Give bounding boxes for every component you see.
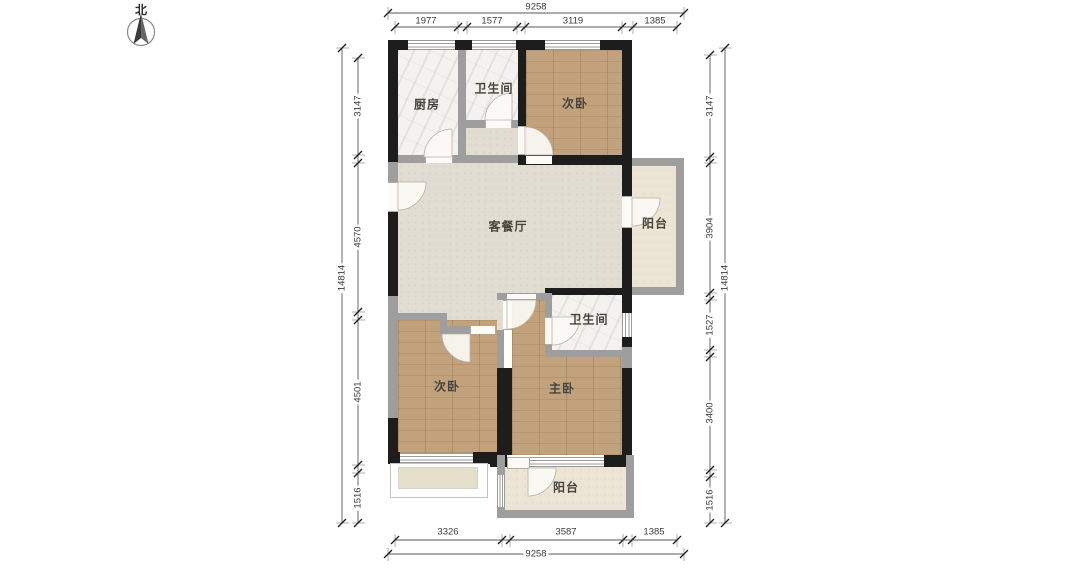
kitchen-door xyxy=(425,155,453,163)
wall xyxy=(676,158,684,295)
dim-left-seg-1: 4570 xyxy=(353,224,364,249)
balcony-bottom-slide-window xyxy=(528,457,604,467)
bay-window-inner xyxy=(398,467,478,489)
dim-right-seg-3: 3400 xyxy=(705,400,716,425)
dim-top-total: 9258 xyxy=(525,2,546,13)
dim-bottom-total: 9258 xyxy=(523,549,548,560)
room-label-bedroom-lower: 次卧 xyxy=(434,378,460,395)
master-door-gap xyxy=(507,294,536,299)
dim-right-seg-2: 1527 xyxy=(705,312,716,337)
wall xyxy=(545,288,632,295)
bath-top-door xyxy=(485,120,512,128)
wall xyxy=(622,40,632,196)
wall xyxy=(388,296,398,418)
bedroom-top-door-gap xyxy=(526,156,552,164)
room-label-balcony-right: 阳台 xyxy=(642,215,668,232)
room-label-living: 客餐厅 xyxy=(488,218,527,235)
wall xyxy=(518,40,526,126)
wall xyxy=(545,350,632,357)
wall xyxy=(626,455,634,518)
dim-bottom-seg-1: 3587 xyxy=(555,527,576,538)
dim-top-seg-3: 1385 xyxy=(644,16,665,27)
bath-lower-door xyxy=(545,317,552,345)
dim-top-seg-1: 1577 xyxy=(481,16,502,27)
bedroom-top-door-panel xyxy=(518,126,526,155)
dim-right-seg-4: 1516 xyxy=(705,487,716,512)
bedroom-lower-door xyxy=(470,326,496,334)
room-label-balcony-bottom: 阳台 xyxy=(553,479,579,496)
bath-top-window xyxy=(472,40,516,50)
wall xyxy=(545,295,552,317)
wall xyxy=(388,40,398,162)
kitchen-window xyxy=(408,40,455,50)
balcony-bottom-door xyxy=(507,457,530,469)
bedroom-lower-window xyxy=(400,453,473,463)
dim-top-seg-0: 1977 xyxy=(415,16,436,27)
room-label-bath-top: 卫生间 xyxy=(474,80,513,97)
wall xyxy=(497,510,634,518)
dim-left-total: 14814 xyxy=(337,263,348,293)
dim-top-seg-2: 3119 xyxy=(563,16,583,27)
dim-bottom-seg-2: 1385 xyxy=(643,527,664,538)
wall xyxy=(388,162,398,182)
bedroom-top-window xyxy=(545,40,600,50)
balcony-right-door xyxy=(622,196,632,228)
dim-left-seg-0: 3147 xyxy=(353,93,364,118)
wall xyxy=(622,368,632,462)
wall xyxy=(497,330,504,368)
entry-door xyxy=(388,182,398,212)
dim-bottom-seg-0: 3326 xyxy=(437,527,458,538)
wall xyxy=(398,155,425,163)
room-label-bath-lower: 卫生间 xyxy=(569,311,608,328)
north-label: 北 xyxy=(135,1,147,18)
bath-lower-window xyxy=(622,313,632,337)
wall xyxy=(453,155,518,163)
wall xyxy=(497,368,512,455)
room-label-bedroom-top: 次卧 xyxy=(562,95,588,112)
dim-right-seg-0: 3147 xyxy=(705,93,716,118)
master-door-panel xyxy=(503,300,512,330)
balcony-bottom-side-window xyxy=(497,475,505,507)
wall xyxy=(458,50,466,155)
dim-left-seg-3: 1516 xyxy=(353,485,364,510)
room-label-kitchen: 厨房 xyxy=(414,96,440,113)
wall xyxy=(632,287,684,295)
dim-left-seg-2: 4501 xyxy=(353,379,364,404)
room-label-master: 主卧 xyxy=(549,380,575,397)
floor-plan: 厨房 卫生间 次卧 客餐厅 阳台 卫生间 次卧 主卧 阳台 9258 1977 … xyxy=(0,0,1074,576)
dim-right-seg-1: 3904 xyxy=(705,215,716,240)
wall xyxy=(388,212,398,296)
wall xyxy=(622,337,632,347)
wall xyxy=(458,120,485,128)
dim-right-total: 14814 xyxy=(720,263,731,293)
wall xyxy=(622,228,632,313)
wall xyxy=(440,326,470,334)
